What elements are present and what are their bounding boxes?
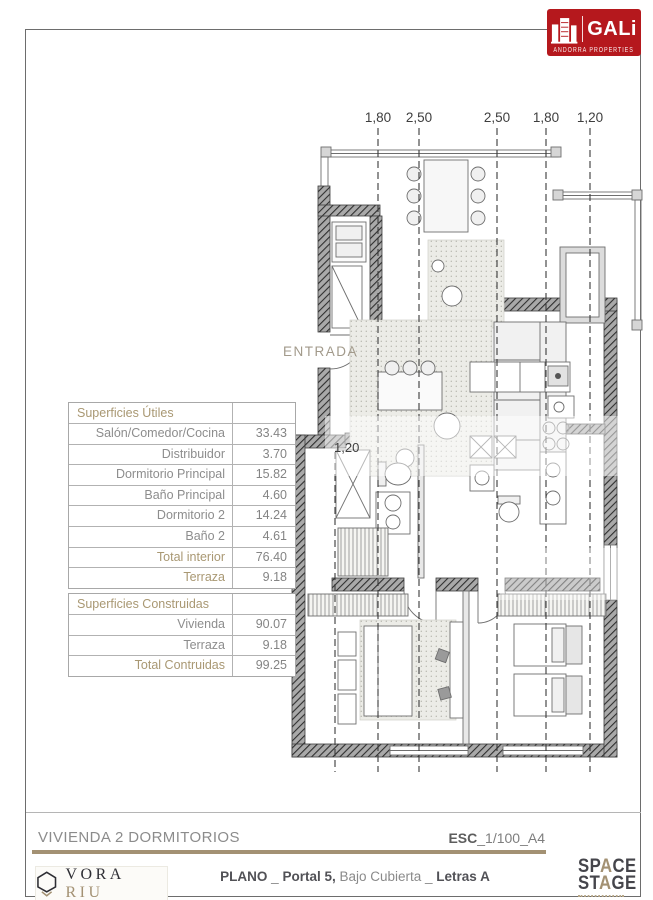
row-value: 3.70 (233, 445, 295, 465)
vora-riu-logo: VORA RIU (35, 866, 168, 900)
bedroom-principal (308, 594, 463, 724)
superficies-construidas-table: Superficies Construidas Vivienda90.07Ter… (68, 593, 296, 677)
dimension-label: 1,80 (365, 110, 391, 125)
entry-closet (332, 222, 366, 328)
table-header: Superficies Útiles (69, 403, 295, 423)
hexagon-icon (36, 871, 57, 897)
accent-rule (32, 850, 546, 854)
dimension-label: 2,50 (484, 110, 510, 125)
titleblock-divider (26, 812, 641, 813)
table-row: Salón/Comedor/Cocina33.43 (69, 423, 295, 444)
row-label: Salón/Comedor/Cocina (69, 424, 233, 444)
bajo-cubierta-word: Bajo Cubierta (336, 869, 425, 884)
sheet-title: VIVIENDA 2 DORMITORIOS (38, 829, 240, 846)
vora-riu-text: VORA RIU (65, 866, 167, 900)
table-row: Baño Principal4.60 (69, 485, 295, 506)
kitchen-island (378, 361, 442, 410)
dimension-label: 1,80 (533, 110, 559, 125)
row-label: Vivienda (69, 615, 233, 635)
row-value: 33.43 (233, 424, 295, 444)
letras-word: Letras A (436, 869, 490, 884)
plan-sheet: GALi ANDORRA PROPERTIES 1,80 2,50 2,50 1… (0, 0, 653, 900)
table-title-spacer (233, 594, 295, 614)
dimension-label: 2,50 (406, 110, 432, 125)
scale-label-bold: ESC (448, 830, 477, 846)
superficies-utiles-table: Superficies Útiles Salón/Comedor/Cocina3… (68, 402, 296, 589)
space-stage-logo: SPACE STAGE (578, 858, 637, 897)
logo-text: ST (578, 873, 599, 894)
row-label: Terraza (69, 568, 233, 588)
plano-word: PLANO (220, 869, 267, 884)
plano-caption: PLANO _ Portal 5, Bajo Cubierta _ Letras… (170, 869, 540, 884)
riu-word: RIU (65, 884, 103, 900)
table-row: Terraza9.18 (69, 567, 295, 588)
vora-word: VORA (65, 866, 123, 883)
row-label: Terraza (69, 636, 233, 656)
dimension-label: 1,20 (577, 110, 603, 125)
plano-sep: _ (267, 869, 282, 884)
table-row: Total Contruidas99.25 (69, 655, 295, 676)
table-title: Superficies Construidas (69, 594, 233, 614)
row-value: 9.18 (233, 568, 295, 588)
row-label: Baño Principal (69, 486, 233, 506)
table-title: Superficies Útiles (69, 403, 233, 423)
row-value: 99.25 (233, 656, 295, 676)
space-stage-line2: STAGE (578, 875, 637, 892)
table-row: Distribuidor3.70 (69, 444, 295, 465)
gali-subtitle: ANDORRA PROPERTIES (554, 47, 634, 54)
table-row: Terraza9.18 (69, 635, 295, 656)
table-row: Baño 24.61 (69, 526, 295, 547)
table-row: Dormitorio 214.24 (69, 505, 295, 526)
row-value: 14.24 (233, 506, 295, 526)
portal-word: Portal 5, (282, 869, 335, 884)
row-label: Dormitorio Principal (69, 465, 233, 485)
row-value: 4.60 (233, 486, 295, 506)
logo-divider (582, 16, 583, 42)
row-value: 76.40 (233, 548, 295, 568)
table-row: Total interior76.40 (69, 547, 295, 568)
table-title-spacer (233, 403, 295, 423)
plano-sep: _ (425, 869, 436, 884)
entrada-label: ENTRADA (283, 344, 358, 359)
table-row: Dormitorio Principal15.82 (69, 464, 295, 485)
row-label: Total interior (69, 548, 233, 568)
row-label: Dormitorio 2 (69, 506, 233, 526)
scale-label-rest: _1/100_A4 (477, 830, 545, 846)
row-value: 9.18 (233, 636, 295, 656)
gali-brand-text: GALi (587, 16, 637, 42)
cabinet (560, 247, 605, 323)
row-value: 15.82 (233, 465, 295, 485)
table-row: Vivienda90.07 (69, 614, 295, 635)
row-label: Total Contruidas (69, 656, 233, 676)
row-value: 90.07 (233, 615, 295, 635)
gali-logo: GALi ANDORRA PROPERTIES (547, 9, 641, 56)
logo-text: GE (612, 873, 637, 894)
row-label: Distribuidor (69, 445, 233, 465)
inner-dimension-label: 1,20 (334, 440, 359, 455)
row-label: Baño 2 (69, 527, 233, 547)
building-icon (551, 12, 578, 46)
terrace-lounge (428, 240, 504, 328)
logo-accent-a: A (599, 873, 612, 894)
row-value: 4.61 (233, 527, 295, 547)
scale-label: ESC_1/100_A4 (448, 830, 545, 846)
table-header: Superficies Construidas (69, 594, 295, 614)
